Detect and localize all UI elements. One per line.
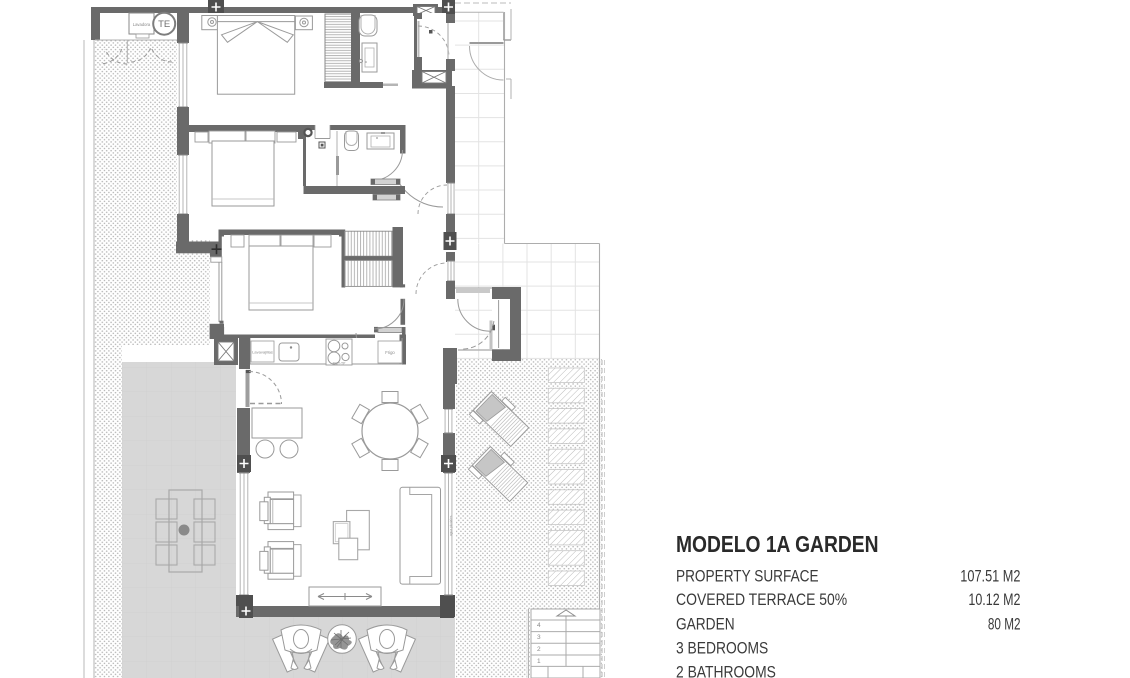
svg-text:3 BEDROOMS: 3 BEDROOMS: [676, 639, 768, 658]
svg-text:PROPERTY SURFACE: PROPERTY SURFACE: [676, 567, 819, 586]
svg-text:MODELO 1A GARDEN: MODELO 1A GARDEN: [676, 531, 879, 557]
svg-text:3: 3: [537, 634, 541, 641]
svg-text:GARDEN: GARDEN: [676, 614, 735, 633]
svg-text:Lavavajillas: Lavavajillas: [252, 350, 273, 355]
svg-text:COVERED TERRACE 50%: COVERED TERRACE 50%: [676, 590, 847, 609]
svg-text:2: 2: [537, 646, 541, 653]
svg-text:Lavadora: Lavadora: [133, 22, 151, 27]
svg-text:80 M2: 80 M2: [988, 614, 1021, 633]
svg-text:107.51 M2: 107.51 M2: [960, 567, 1020, 586]
svg-text:10.12 M2: 10.12 M2: [968, 590, 1020, 609]
svg-text:1: 1: [537, 658, 541, 665]
svg-text:2 BATHROOMS: 2 BATHROOMS: [676, 663, 776, 678]
svg-text:TE: TE: [158, 19, 170, 30]
svg-text:agua pluviales: agua pluviales: [449, 515, 453, 536]
svg-text:4: 4: [537, 622, 541, 629]
svg-text:Frigo: Frigo: [385, 350, 395, 355]
svg-text:MCY-TP: MCY-TP: [333, 362, 346, 366]
